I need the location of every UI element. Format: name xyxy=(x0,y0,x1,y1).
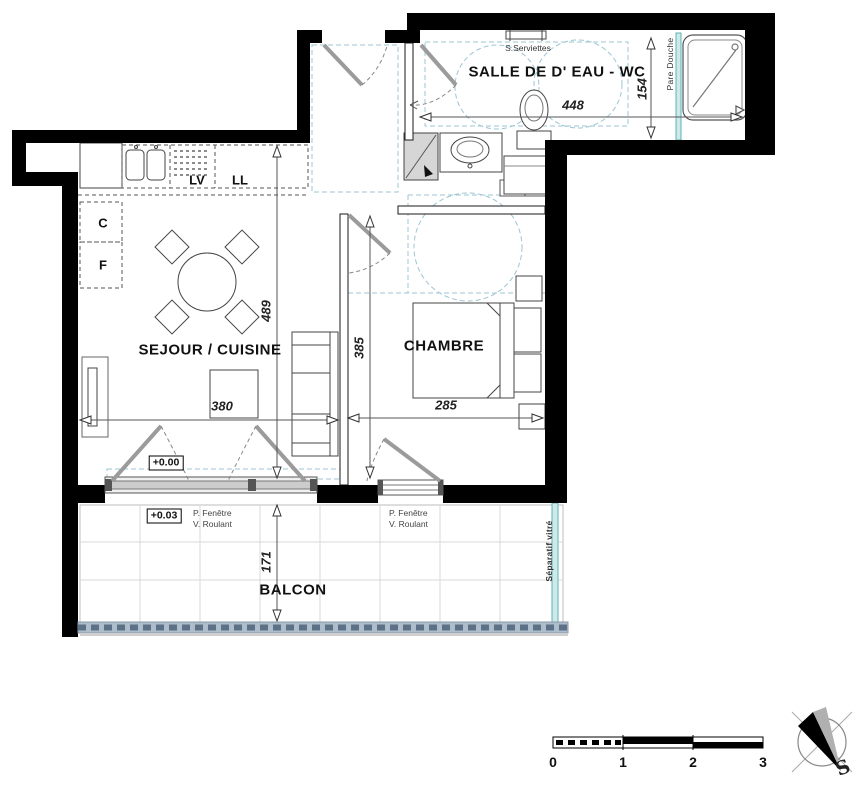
interior-walls xyxy=(340,43,545,485)
towel-dryer-label: S.Serviettes xyxy=(505,43,551,53)
balcony-railing xyxy=(78,622,568,636)
scale-tick-0: 0 xyxy=(549,754,557,770)
window-type-bedroom-line2: V. Roulant xyxy=(389,519,428,529)
dim-bathroom-width: 448 xyxy=(562,98,584,113)
room-label-balcony: BALCON xyxy=(259,582,326,599)
scale-tick-3: 3 xyxy=(759,754,767,770)
glass-partitions xyxy=(552,33,681,622)
bathroom-cabinet-icon xyxy=(504,156,552,194)
shower-screen-label: Pare Douche xyxy=(665,38,675,91)
dim-living-width: 380 xyxy=(211,399,233,414)
washing-machine-label: LL xyxy=(232,173,248,188)
shower-tray-icon xyxy=(683,35,747,120)
dim-bedroom-width: 285 xyxy=(435,398,457,413)
french-window-living xyxy=(105,477,317,493)
window-type-bedroom: P. Fenêtre V. Roulant xyxy=(389,508,428,530)
window-type-living-line2: V. Roulant xyxy=(193,519,232,529)
exterior-walls xyxy=(12,13,775,637)
level-marker-balcony: +0.03 xyxy=(147,509,182,524)
room-label-bathroom: SALLE DE D' EAU - WC xyxy=(469,64,646,81)
dining-table-icon xyxy=(155,230,259,334)
level-marker-main: +0.00 xyxy=(149,456,184,471)
scale-bar xyxy=(553,735,763,750)
room-label-bedroom: CHAMBRE xyxy=(404,338,484,355)
french-window-bedroom xyxy=(378,480,443,495)
dishwasher-label: LV xyxy=(189,173,205,188)
cupboard-label: C xyxy=(98,216,107,231)
fridge-label: F xyxy=(99,258,107,273)
glass-divider-label: Séparatif vitré xyxy=(544,520,554,581)
sofa-icon xyxy=(292,332,338,456)
window-type-living-line1: P. Fenêtre xyxy=(193,508,232,518)
window-type-living: P. Fenêtre V. Roulant xyxy=(193,508,232,530)
scale-tick-1: 1 xyxy=(619,754,627,770)
scale-tick-2: 2 xyxy=(689,754,697,770)
dim-living-height: 489 xyxy=(259,300,274,322)
plan-drawing xyxy=(0,0,860,800)
floor-plan: SALLE DE D' EAU - WC S.Serviettes 448 15… xyxy=(0,0,860,800)
room-label-living: SEJOUR / CUISINE xyxy=(138,342,281,359)
kitchen-hob-icon xyxy=(174,151,208,175)
dim-balcony-depth: 171 xyxy=(259,551,274,573)
washbasin-icon xyxy=(440,133,502,172)
kitchen-sink-icon xyxy=(126,146,165,181)
doors xyxy=(112,45,456,481)
towel-radiator-icon xyxy=(506,29,546,41)
dim-bedroom-height: 385 xyxy=(352,337,367,359)
window-type-bedroom-line1: P. Fenêtre xyxy=(389,508,428,518)
tv-unit-icon xyxy=(82,357,108,437)
dim-bathroom-depth: 154 xyxy=(635,78,650,100)
